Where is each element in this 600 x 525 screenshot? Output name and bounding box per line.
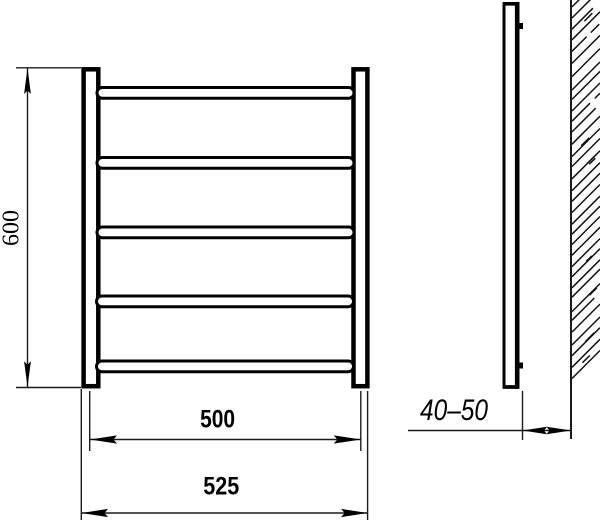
svg-text:500: 500: [200, 406, 235, 434]
svg-text:40–50: 40–50: [420, 394, 488, 427]
svg-text:600: 600: [0, 210, 25, 246]
svg-text:525: 525: [203, 473, 239, 501]
